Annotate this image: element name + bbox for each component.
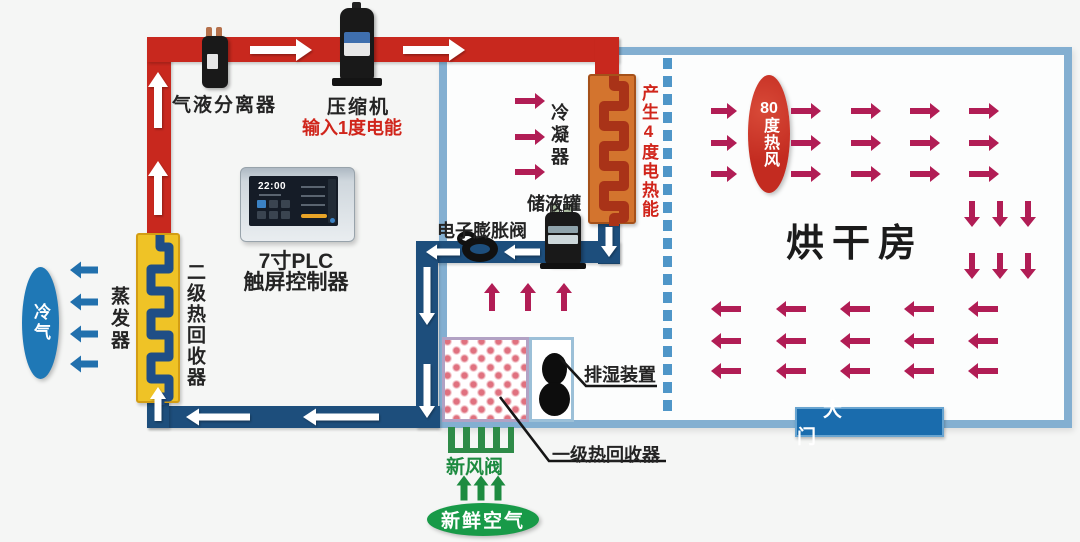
hot-air-flow-arrow-right [910,135,940,151]
hot-air-flow-arrow-right [851,103,881,119]
receiver-label: 储液罐 [527,190,581,216]
hot-air-flow-arrow-left [711,301,741,317]
hot-air-flow-arrow-up [556,283,572,311]
hot-air-flow-arrow-left [840,333,870,349]
secondary-heat-recovery-label: 二级热回收器 [181,262,208,388]
hot-air-flow-arrow-right [791,135,821,151]
hot-air-flow-arrow-down [1020,201,1036,227]
fresh-air-flow-arrow-up [474,476,489,501]
fresh-air-flow-arrow-up [491,476,506,501]
drying-room-label: 烘干房 [786,212,924,267]
pipe-flow-white-arrow-left [426,245,460,260]
evaporator-label: 蒸发器 [105,286,132,352]
hot-air-flow-arrow-right [969,166,999,182]
hot-air-flow-arrow-left [904,363,934,379]
pipe-flow-white-arrow-up [148,161,168,215]
hot-air-flow-arrow-left [904,333,934,349]
heat-output-label: 产生4度电热能 [636,84,661,219]
power-input-label: 输入1度电能 [302,114,402,140]
pipe-flow-white-arrow-right [403,39,465,61]
hot-air-flow-arrow-right [791,166,821,182]
pipe-flow-white-arrow-down [601,227,617,257]
pipe-flow-white-arrow-up [150,387,166,421]
pipe-flow-white-arrow-left [186,409,250,426]
hot-air-flow-arrow-right [910,166,940,182]
hot-air-flow-arrow-right [515,129,545,145]
hot-air-flow-arrow-left [904,301,934,317]
pipe-flow-white-arrow-left [303,409,379,426]
hot-air-flow-arrow-left [776,363,806,379]
hot-air-flow-arrow-down [1020,253,1036,279]
dehumidifier-label: 排湿装置 [584,361,656,387]
fresh-air-flow-arrow-up [457,476,472,501]
hot-air-flow-arrow-right [515,93,545,109]
hot-air-flow-arrow-left [968,363,998,379]
primary-heat-recovery-label: 一级热回收器 [552,441,660,467]
condenser-label: 冷凝器 [546,103,572,169]
plc-label-line2: 触屏控制器 [244,266,349,296]
hot-air-flow-arrow-right [711,166,737,182]
hot-air-flow-arrow-left [711,333,741,349]
hot-air-flow-arrow-left [776,333,806,349]
hot-air-flow-arrow-right [851,166,881,182]
fresh-air-valve-label: 新风阀 [446,452,503,479]
cold-air-flow-arrow-left [70,326,98,343]
hot-air-flow-arrow-left [840,363,870,379]
hot-air-flow-arrow-left [968,301,998,317]
hot-air-flow-arrow-down [992,201,1008,227]
hot-air-flow-arrow-down [992,253,1008,279]
hot-air-flow-arrow-left [776,301,806,317]
hot-air-flow-arrow-right [711,135,737,151]
hot-air-flow-arrow-left [968,333,998,349]
hot-air-flow-arrow-up [520,283,536,311]
hot-air-flow-arrow-right [791,103,821,119]
hot-air-flow-arrow-right [969,135,999,151]
hot-air-flow-arrow-right [910,103,940,119]
hot-air-flow-arrow-right [711,103,737,119]
expansion-valve-label: 电子膨胀阀 [437,217,527,243]
cold-air-flow-arrow-left [70,356,98,373]
pipe-flow-white-arrow-down [419,267,435,325]
hot-air-flow-arrow-left [840,301,870,317]
hot-air-flow-arrow-right [515,164,545,180]
pipe-flow-white-arrow-up [148,72,168,128]
hot-air-flow-arrow-down [964,201,980,227]
hot-air-flow-arrow-right [969,103,999,119]
pipe-flow-white-arrow-down [419,364,435,418]
pipe-flow-white-arrow-left [504,245,540,260]
flow-arrows-overlay [0,0,1080,542]
hot-air-flow-arrow-left [711,363,741,379]
cold-air-flow-arrow-left [70,294,98,311]
hot-air-flow-arrow-up [484,283,500,311]
separator-label: 气液分离器 [172,90,277,117]
hot-air-flow-arrow-right [851,135,881,151]
cold-air-flow-arrow-left [70,262,98,279]
pipe-flow-white-arrow-right [250,39,312,61]
hot-air-flow-arrow-down [964,253,980,279]
heat-pump-dryer-diagram: 22:00 [0,0,1080,542]
